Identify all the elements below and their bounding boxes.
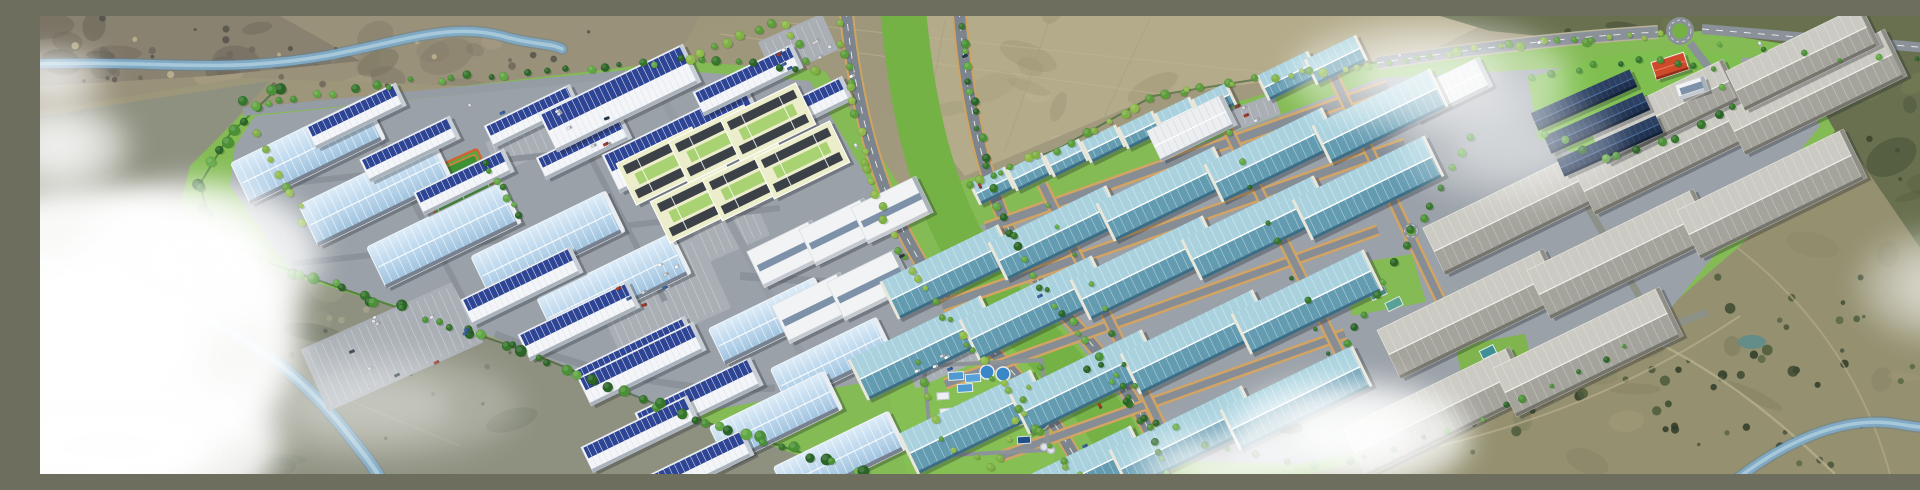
aerial-render-canvas <box>40 16 1920 474</box>
industrial-park-aerial-render <box>40 16 1920 474</box>
